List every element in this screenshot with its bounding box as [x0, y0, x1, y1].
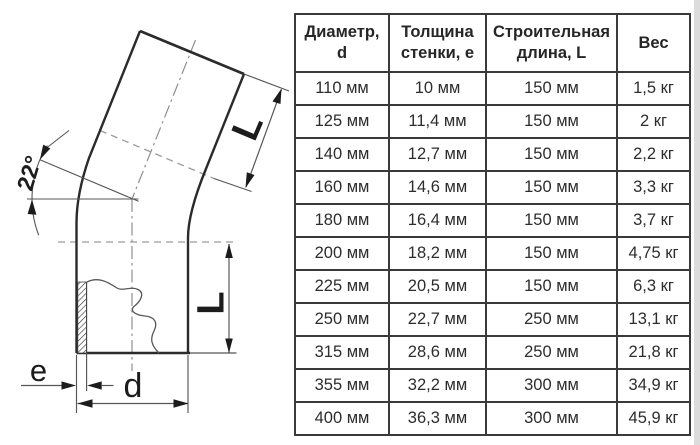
table-cell: 125 мм	[295, 105, 389, 138]
table-row: 160 мм14,6 мм150 мм3,3 кг	[295, 171, 690, 204]
table-cell: 400 мм	[295, 402, 389, 435]
table-cell: 32,2 мм	[389, 369, 486, 402]
spec-table: Диаметр, dТолщина стенки, еСтроительная …	[294, 13, 691, 436]
arrowhead	[62, 381, 77, 389]
table-row: 225 мм20,5 мм150 мм6,3 кг	[295, 270, 690, 303]
arrowhead	[174, 399, 189, 407]
table-cell: 2 кг	[617, 105, 690, 138]
table-cell: 355 мм	[295, 369, 389, 402]
arrowhead	[273, 89, 282, 105]
table-cell: 250 мм	[486, 336, 617, 369]
table-row: 355 мм32,2 мм300 мм34,9 кг	[295, 369, 690, 402]
table-row: 110 мм10 мм150 мм1,5 кг	[295, 72, 690, 105]
column-header: Вес	[617, 14, 690, 72]
table-cell: 3,3 кг	[617, 171, 690, 204]
arrowhead	[78, 399, 93, 407]
table-cell: 45,9 кг	[617, 402, 690, 435]
arrowhead	[87, 381, 102, 389]
table-row: 315 мм28,6 мм250 мм21,8 кг	[295, 336, 690, 369]
centerlines	[132, 40, 196, 371]
table-cell: 180 мм	[295, 204, 389, 237]
table-cell: 16,4 мм	[389, 204, 486, 237]
column-header: Толщина стенки, е	[389, 14, 486, 72]
arrowhead	[246, 172, 255, 188]
table-cell: 300 мм	[486, 402, 617, 435]
column-header: Строительная длина, L	[486, 14, 617, 72]
table-row: 400 мм36,3 мм300 мм45,9 кг	[295, 402, 690, 435]
wall-thickness-label: e	[30, 353, 47, 388]
table-cell: 21,8 кг	[617, 336, 690, 369]
spec-table-body: 110 мм10 мм150 мм1,5 кг125 мм11,4 мм150 …	[295, 72, 690, 435]
table-cell: 150 мм	[486, 171, 617, 204]
table-cell: 250 мм	[295, 303, 389, 336]
joint-lines	[58, 131, 234, 243]
pipe-elbow-diagram: 22° L L e d	[0, 0, 296, 445]
right-edge-strip	[694, 0, 700, 445]
dimension-length-lower: L	[191, 244, 233, 354]
break-line	[87, 280, 159, 353]
table-cell: 34,9 кг	[617, 369, 690, 402]
length-lower-label: L	[191, 291, 233, 314]
table-row: 125 мм11,4 мм150 мм2 кг	[295, 105, 690, 138]
table-cell: 12,7 мм	[389, 138, 486, 171]
table-cell: 10 мм	[389, 72, 486, 105]
table-cell: 4,75 кг	[617, 237, 690, 270]
angle-label: 22°	[11, 153, 46, 194]
table-cell: 6,3 кг	[617, 270, 690, 303]
table-cell: 13,1 кг	[617, 303, 690, 336]
column-header: Диаметр, d	[295, 14, 389, 72]
arrowhead	[28, 200, 37, 215]
table-cell: 315 мм	[295, 336, 389, 369]
table-cell: 14,6 мм	[389, 171, 486, 204]
table-cell: 140 мм	[295, 138, 389, 171]
table-cell: 36,3 мм	[389, 402, 486, 435]
length-upper-label: L	[224, 109, 272, 147]
table-cell: 2,2 кг	[617, 138, 690, 171]
table-cell: 160 мм	[295, 171, 389, 204]
arrowhead	[225, 339, 233, 354]
table-cell: 150 мм	[486, 138, 617, 171]
table-cell: 20,5 мм	[389, 270, 486, 303]
table-cell: 225 мм	[295, 270, 389, 303]
table-row: 200 мм18,2 мм150 мм4,75 кг	[295, 237, 690, 270]
diameter-label: d	[124, 367, 143, 405]
table-row: 180 мм16,4 мм150 мм3,7 кг	[295, 204, 690, 237]
dimension-wall-thickness: e	[21, 353, 114, 390]
section-hatch	[78, 282, 87, 353]
table-cell: 110 мм	[295, 72, 389, 105]
table-cell: 18,2 мм	[389, 237, 486, 270]
table-cell: 150 мм	[486, 237, 617, 270]
spec-table-header-row: Диаметр, dТолщина стенки, еСтроительная …	[295, 14, 690, 72]
screen: 22° L L e d	[0, 0, 700, 445]
table-cell: 1,5 кг	[617, 72, 690, 105]
table-cell: 150 мм	[486, 72, 617, 105]
table-cell: 150 мм	[486, 270, 617, 303]
table-cell: 300 мм	[486, 369, 617, 402]
table-cell: 200 мм	[295, 237, 389, 270]
spec-table-container: Диаметр, dТолщина стенки, еСтроительная …	[294, 13, 691, 436]
arrowhead	[225, 244, 233, 259]
table-cell: 150 мм	[486, 105, 617, 138]
table-cell: 250 мм	[486, 303, 617, 336]
table-cell: 11,4 мм	[389, 105, 486, 138]
table-cell: 3,7 кг	[617, 204, 690, 237]
table-row: 250 мм22,7 мм250 мм13,1 кг	[295, 303, 690, 336]
table-cell: 28,6 мм	[389, 336, 486, 369]
table-cell: 150 мм	[486, 204, 617, 237]
table-cell: 22,7 мм	[389, 303, 486, 336]
spec-table-head: Диаметр, dТолщина стенки, еСтроительная …	[295, 14, 690, 72]
dimension-angle: 22°	[11, 131, 138, 236]
table-row: 140 мм12,7 мм150 мм2,2 кг	[295, 138, 690, 171]
